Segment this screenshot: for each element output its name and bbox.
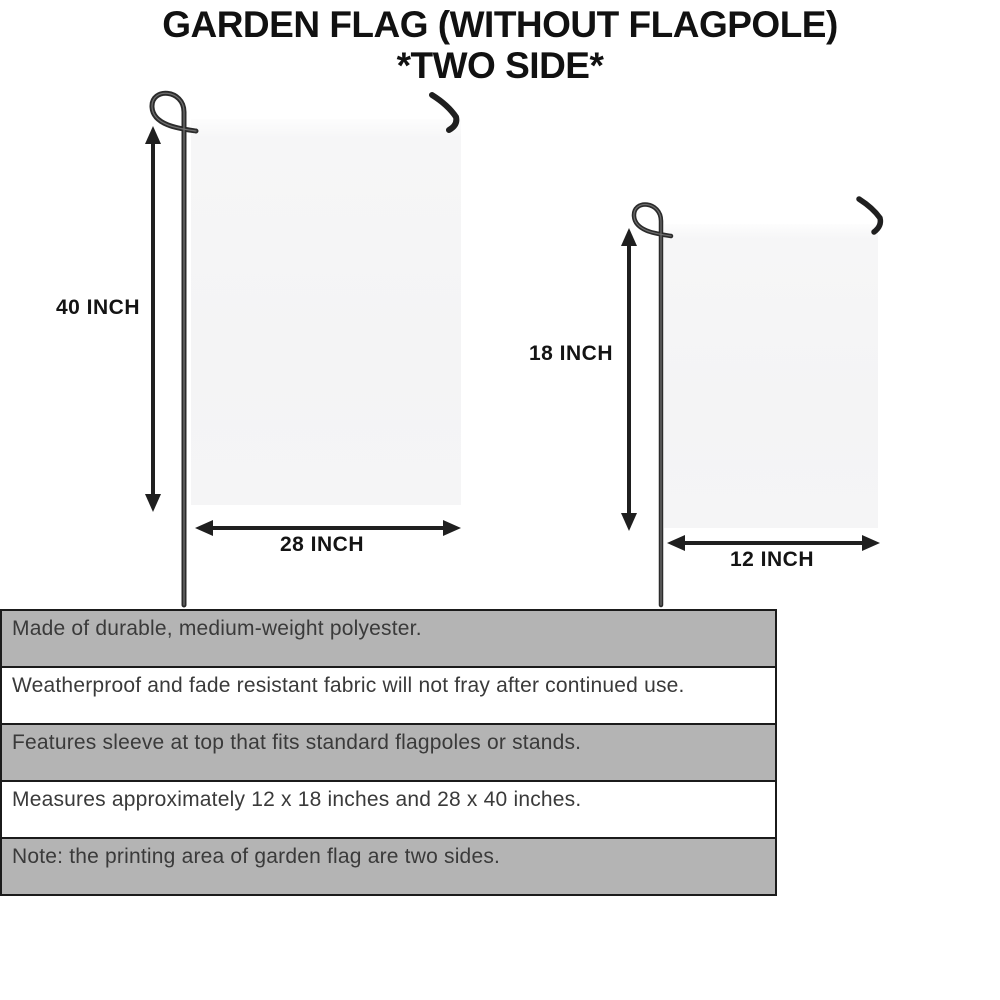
small-flag-width-label: 12 INCH bbox=[692, 548, 852, 572]
small-flag-height-label: 18 INCH bbox=[505, 342, 613, 366]
garden-flag-infographic: GARDEN FLAG (WITHOUT FLAGPOLE) *TWO SIDE… bbox=[0, 0, 1000, 1000]
large-flag-height-label: 40 INCH bbox=[40, 296, 140, 320]
large-height-arrow-icon bbox=[145, 126, 161, 512]
feature-list: Made of durable, medium-weight polyester… bbox=[0, 609, 777, 896]
feature-row: Note: the printing area of garden flag a… bbox=[2, 839, 775, 894]
large-flagpole-icon bbox=[152, 93, 196, 605]
small-flagpole-icon bbox=[634, 205, 671, 605]
feature-row: Made of durable, medium-weight polyester… bbox=[2, 611, 775, 668]
large-flag-hook-icon bbox=[432, 95, 456, 130]
feature-row: Measures approximately 12 x 18 inches an… bbox=[2, 782, 775, 839]
small-flag-hook-icon bbox=[859, 199, 880, 232]
feature-row: Features sleeve at top that fits standar… bbox=[2, 725, 775, 782]
small-height-arrow-icon bbox=[621, 228, 637, 531]
large-flag-width-label: 28 INCH bbox=[242, 533, 402, 557]
feature-row: Weatherproof and fade resistant fabric w… bbox=[2, 668, 775, 725]
